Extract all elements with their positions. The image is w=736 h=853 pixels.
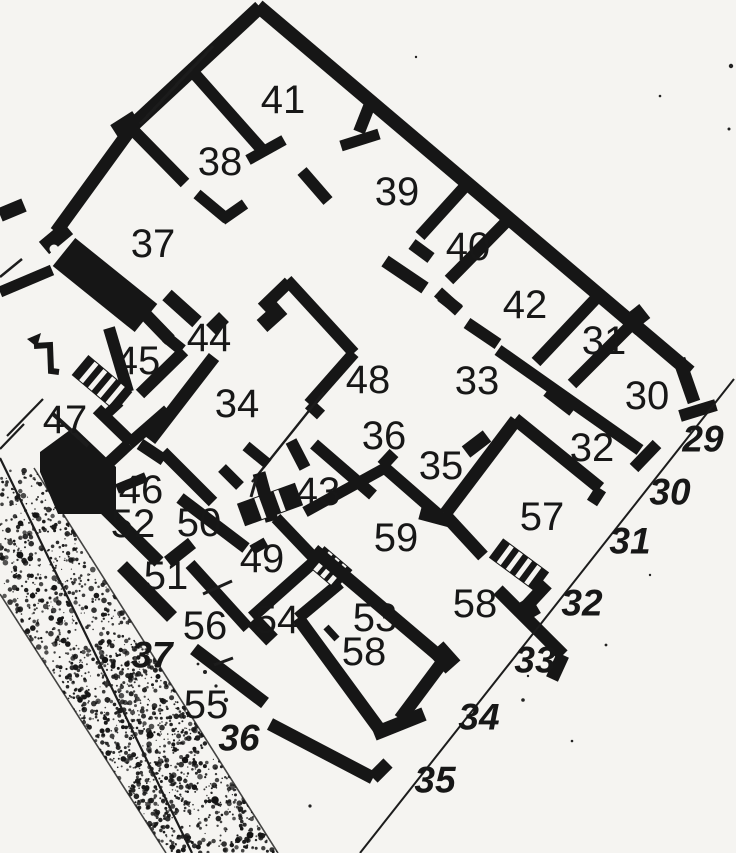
svg-text:29: 29 bbox=[681, 419, 724, 460]
svg-text:33: 33 bbox=[455, 359, 500, 403]
svg-text:43: 43 bbox=[296, 470, 341, 514]
svg-text:58: 58 bbox=[342, 630, 387, 674]
svg-text:54: 54 bbox=[255, 598, 300, 642]
svg-text:33: 33 bbox=[514, 640, 556, 681]
svg-text:36: 36 bbox=[218, 718, 260, 759]
svg-text:35: 35 bbox=[419, 444, 464, 488]
svg-text:39: 39 bbox=[375, 170, 420, 214]
svg-text:32: 32 bbox=[570, 426, 615, 470]
svg-text:48: 48 bbox=[346, 358, 391, 402]
svg-text:30: 30 bbox=[625, 374, 670, 418]
svg-text:31: 31 bbox=[609, 521, 650, 562]
svg-text:40: 40 bbox=[446, 225, 491, 269]
svg-text:49: 49 bbox=[240, 537, 285, 581]
svg-text:59: 59 bbox=[374, 516, 419, 560]
svg-text:31: 31 bbox=[582, 319, 627, 363]
svg-text:42: 42 bbox=[503, 283, 548, 327]
svg-text:38: 38 bbox=[198, 140, 243, 184]
svg-text:52: 52 bbox=[111, 502, 156, 546]
svg-text:36: 36 bbox=[362, 414, 407, 458]
svg-text:58: 58 bbox=[453, 582, 498, 626]
svg-text:57: 57 bbox=[520, 495, 565, 539]
svg-text:37: 37 bbox=[131, 222, 176, 266]
svg-text:47: 47 bbox=[43, 398, 88, 442]
svg-text:30: 30 bbox=[649, 472, 691, 513]
svg-text:35: 35 bbox=[414, 760, 457, 801]
svg-text:37: 37 bbox=[131, 635, 175, 676]
svg-text:50: 50 bbox=[177, 501, 222, 545]
svg-text:34: 34 bbox=[458, 697, 499, 738]
svg-text:44: 44 bbox=[187, 316, 232, 360]
svg-text:34: 34 bbox=[215, 382, 260, 426]
svg-text:45: 45 bbox=[116, 339, 161, 383]
svg-text:51: 51 bbox=[144, 554, 189, 598]
svg-text:56: 56 bbox=[183, 604, 228, 648]
svg-text:32: 32 bbox=[561, 583, 603, 624]
svg-text:41: 41 bbox=[261, 78, 306, 122]
